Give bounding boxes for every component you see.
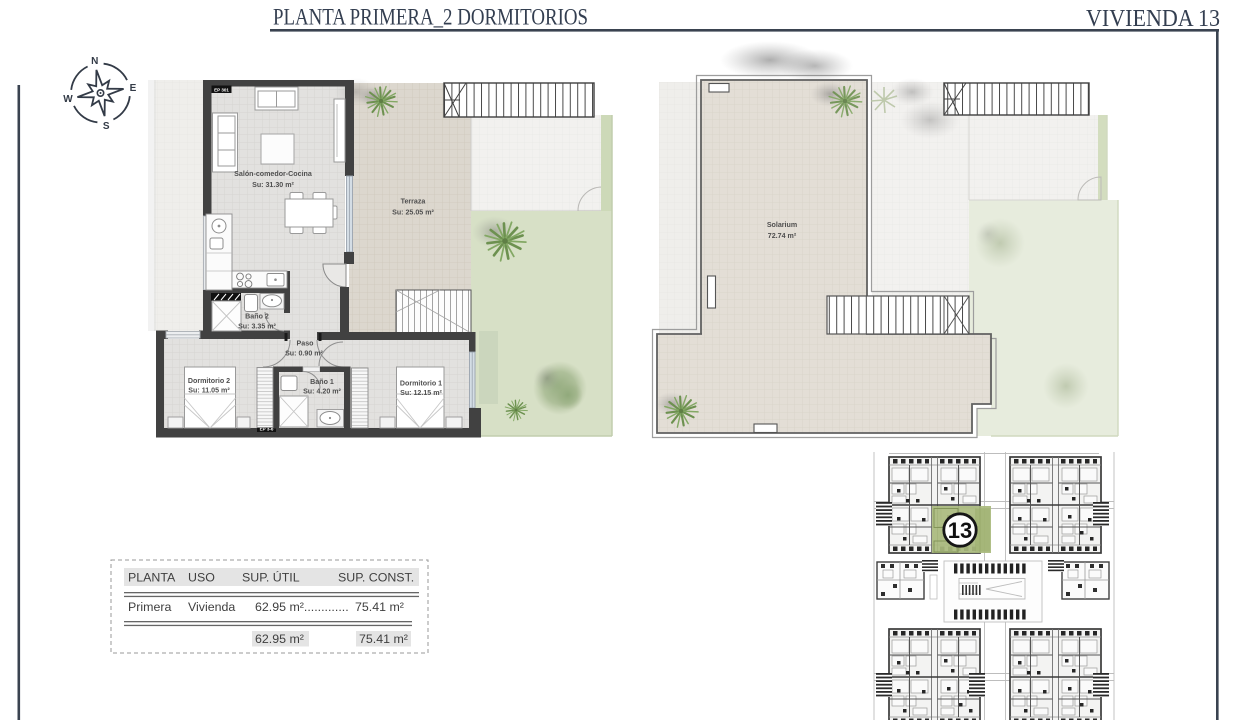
svg-text:Baño 2: Baño 2 (245, 313, 269, 321)
svg-text:Paso: Paso (297, 340, 315, 348)
svg-text:Su: 11.05 m²: Su: 11.05 m² (188, 387, 230, 395)
svg-text:PLANTA PRIMERA_2 DORMITORIOS: PLANTA PRIMERA_2 DORMITORIOS (273, 5, 588, 30)
svg-text:Baño 1: Baño 1 (310, 378, 334, 386)
svg-text:Dormitorio 1: Dormitorio 1 (400, 380, 442, 388)
svg-text:Dormitorio 2: Dormitorio 2 (188, 377, 230, 385)
svg-text:Su: 25.05 m²: Su: 25.05 m² (392, 209, 434, 217)
svg-text:Su: 12.15 m²: Su: 12.15 m² (400, 389, 442, 397)
svg-text:75.41 m²: 75.41 m² (359, 632, 408, 646)
svg-text:72.74 m²: 72.74 m² (768, 232, 797, 240)
svg-text:W: W (63, 94, 73, 105)
svg-text:S: S (103, 121, 110, 132)
svg-text:Vivienda: Vivienda (188, 600, 235, 614)
svg-text:SUP. ÚTIL: SUP. ÚTIL (242, 570, 300, 585)
svg-text:USO: USO (188, 571, 215, 585)
svg-text:Salón-comedor-Cocina: Salón-comedor-Cocina (234, 170, 312, 178)
svg-text:Solarium: Solarium (767, 221, 797, 229)
svg-text:Terraza: Terraza (401, 198, 426, 206)
svg-text:E: E (130, 83, 137, 94)
svg-text:N: N (91, 56, 98, 67)
svg-text:Su: 3.35 m²: Su: 3.35 m² (238, 323, 276, 331)
svg-text:EP 301: EP 301 (214, 87, 229, 92)
svg-text:SUP. CONST.: SUP. CONST. (338, 571, 414, 585)
svg-text:VIVIENDA 13: VIVIENDA 13 (1086, 6, 1220, 32)
svg-text:62.95 m²: 62.95 m² (255, 632, 304, 646)
svg-text:Su: 4.20 m²: Su: 4.20 m² (303, 388, 341, 396)
svg-text:PLANTA: PLANTA (128, 571, 176, 585)
svg-text:75.41 m²: 75.41 m² (355, 600, 404, 614)
svg-text:13: 13 (948, 518, 972, 543)
svg-text:Primera: Primera (128, 600, 171, 614)
svg-text:Su: 0.90 m²: Su: 0.90 m² (285, 350, 323, 358)
svg-text:Su: 31.30 m²: Su: 31.30 m² (252, 181, 294, 189)
svg-text:62.95 m².............: 62.95 m²............. (255, 600, 349, 614)
